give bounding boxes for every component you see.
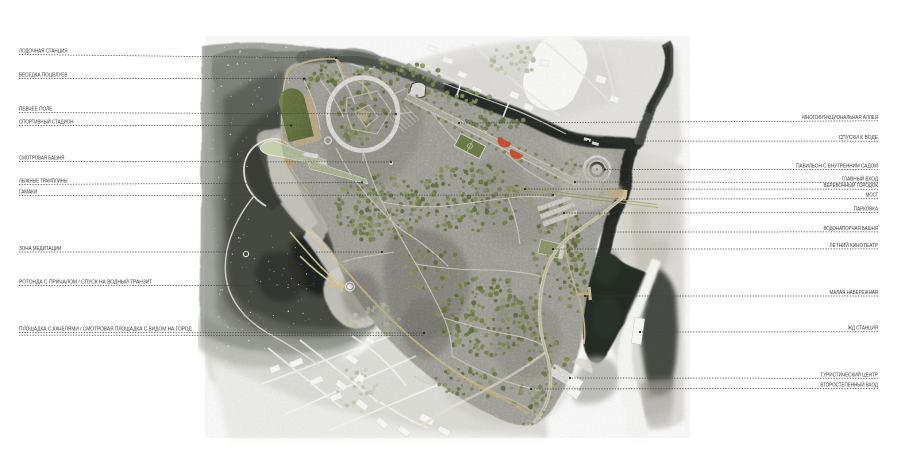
svg-text:ЛОДОЧНАЯ СТАНЦИЯ: ЛОДОЧНАЯ СТАНЦИЯ	[19, 49, 68, 55]
svg-text:ВОДОНАПОРНАЯ БАШНЯ: ВОДОНАПОРНАЯ БАШНЯ	[824, 226, 879, 232]
svg-text:ГАМАКИ: ГАМАКИ	[19, 190, 37, 196]
svg-text:ВЕРЕВОЧНЫЙ ГОРОДОК: ВЕРЕВОЧНЫЙ ГОРОДОК	[824, 181, 879, 189]
svg-text:ТУРИСТИЧЕСКИЙ ЦЕНТР: ТУРИСТИЧЕСКИЙ ЦЕНТР	[820, 370, 878, 378]
svg-text:МАЛАЯ НАБЕРЕЖНАЯ: МАЛАЯ НАБЕРЕЖНАЯ	[830, 290, 879, 296]
svg-text:СМОТРОВАЯ БАШНЯ: СМОТРОВАЯ БАШНЯ	[19, 156, 64, 162]
svg-text:БЕСЕДКА ПОЦЕЛУЕВ: БЕСЕДКА ПОЦЕЛУЕВ	[19, 73, 68, 79]
svg-text:ПЛОЩАДКА С КАЧЕЛЯМИ / СМОТРОВА: ПЛОЩАДКА С КАЧЕЛЯМИ / СМОТРОВАЯ ПЛОЩАДКА…	[19, 327, 192, 333]
svg-text:ЛЫЖНЫЕ ТРАМПЛИНЫ: ЛЫЖНЫЕ ТРАМПЛИНЫ	[19, 179, 68, 185]
svg-text:ВТОРОСТЕПЕННЫЙ ВХОД: ВТОРОСТЕПЕННЫЙ ВХОД	[820, 380, 878, 388]
svg-text:ЖД СТАНЦИЯ: ЖД СТАНЦИЯ	[848, 326, 878, 332]
svg-text:ПАРКОВКА: ПАРКОВКА	[854, 207, 878, 213]
svg-text:МНОГОФУНКЦИОНАЛЬНАЯ АЛЛЕЯ: МНОГОФУНКЦИОНАЛЬНАЯ АЛЛЕЯ	[802, 115, 878, 121]
svg-text:ГЛАВНЫЙ ВХОД: ГЛАВНЫЙ ВХОД	[842, 174, 879, 182]
svg-text:РОТОНДА С ПРИЧАЛОМ / СПУСК НА: РОТОНДА С ПРИЧАЛОМ / СПУСК НА ВОДНЫЙ ТРА…	[19, 278, 153, 286]
svg-text:ЛЕТНИЙ КИНОТЕАТР: ЛЕТНИЙ КИНОТЕАТР	[830, 241, 879, 249]
svg-text:ПАВИЛЬОН С ВНУТРЕННИМ САДОМ: ПАВИЛЬОН С ВНУТРЕННИМ САДОМ	[796, 164, 878, 170]
svg-text:МОСТ: МОСТ	[866, 193, 878, 199]
svg-text:ПЕВЧЕЕ ПОЛЕ: ПЕВЧЕЕ ПОЛЕ	[19, 107, 52, 113]
svg-text:ЗОНА МЕДИТАЦИИ: ЗОНА МЕДИТАЦИИ	[19, 246, 61, 252]
svg-text:СПОРТИВНЫЙ СТАДИОН: СПОРТИВНЫЙ СТАДИОН	[19, 118, 74, 126]
svg-text:СПУСКИ К ВОДЕ: СПУСКИ К ВОДЕ	[839, 135, 879, 141]
